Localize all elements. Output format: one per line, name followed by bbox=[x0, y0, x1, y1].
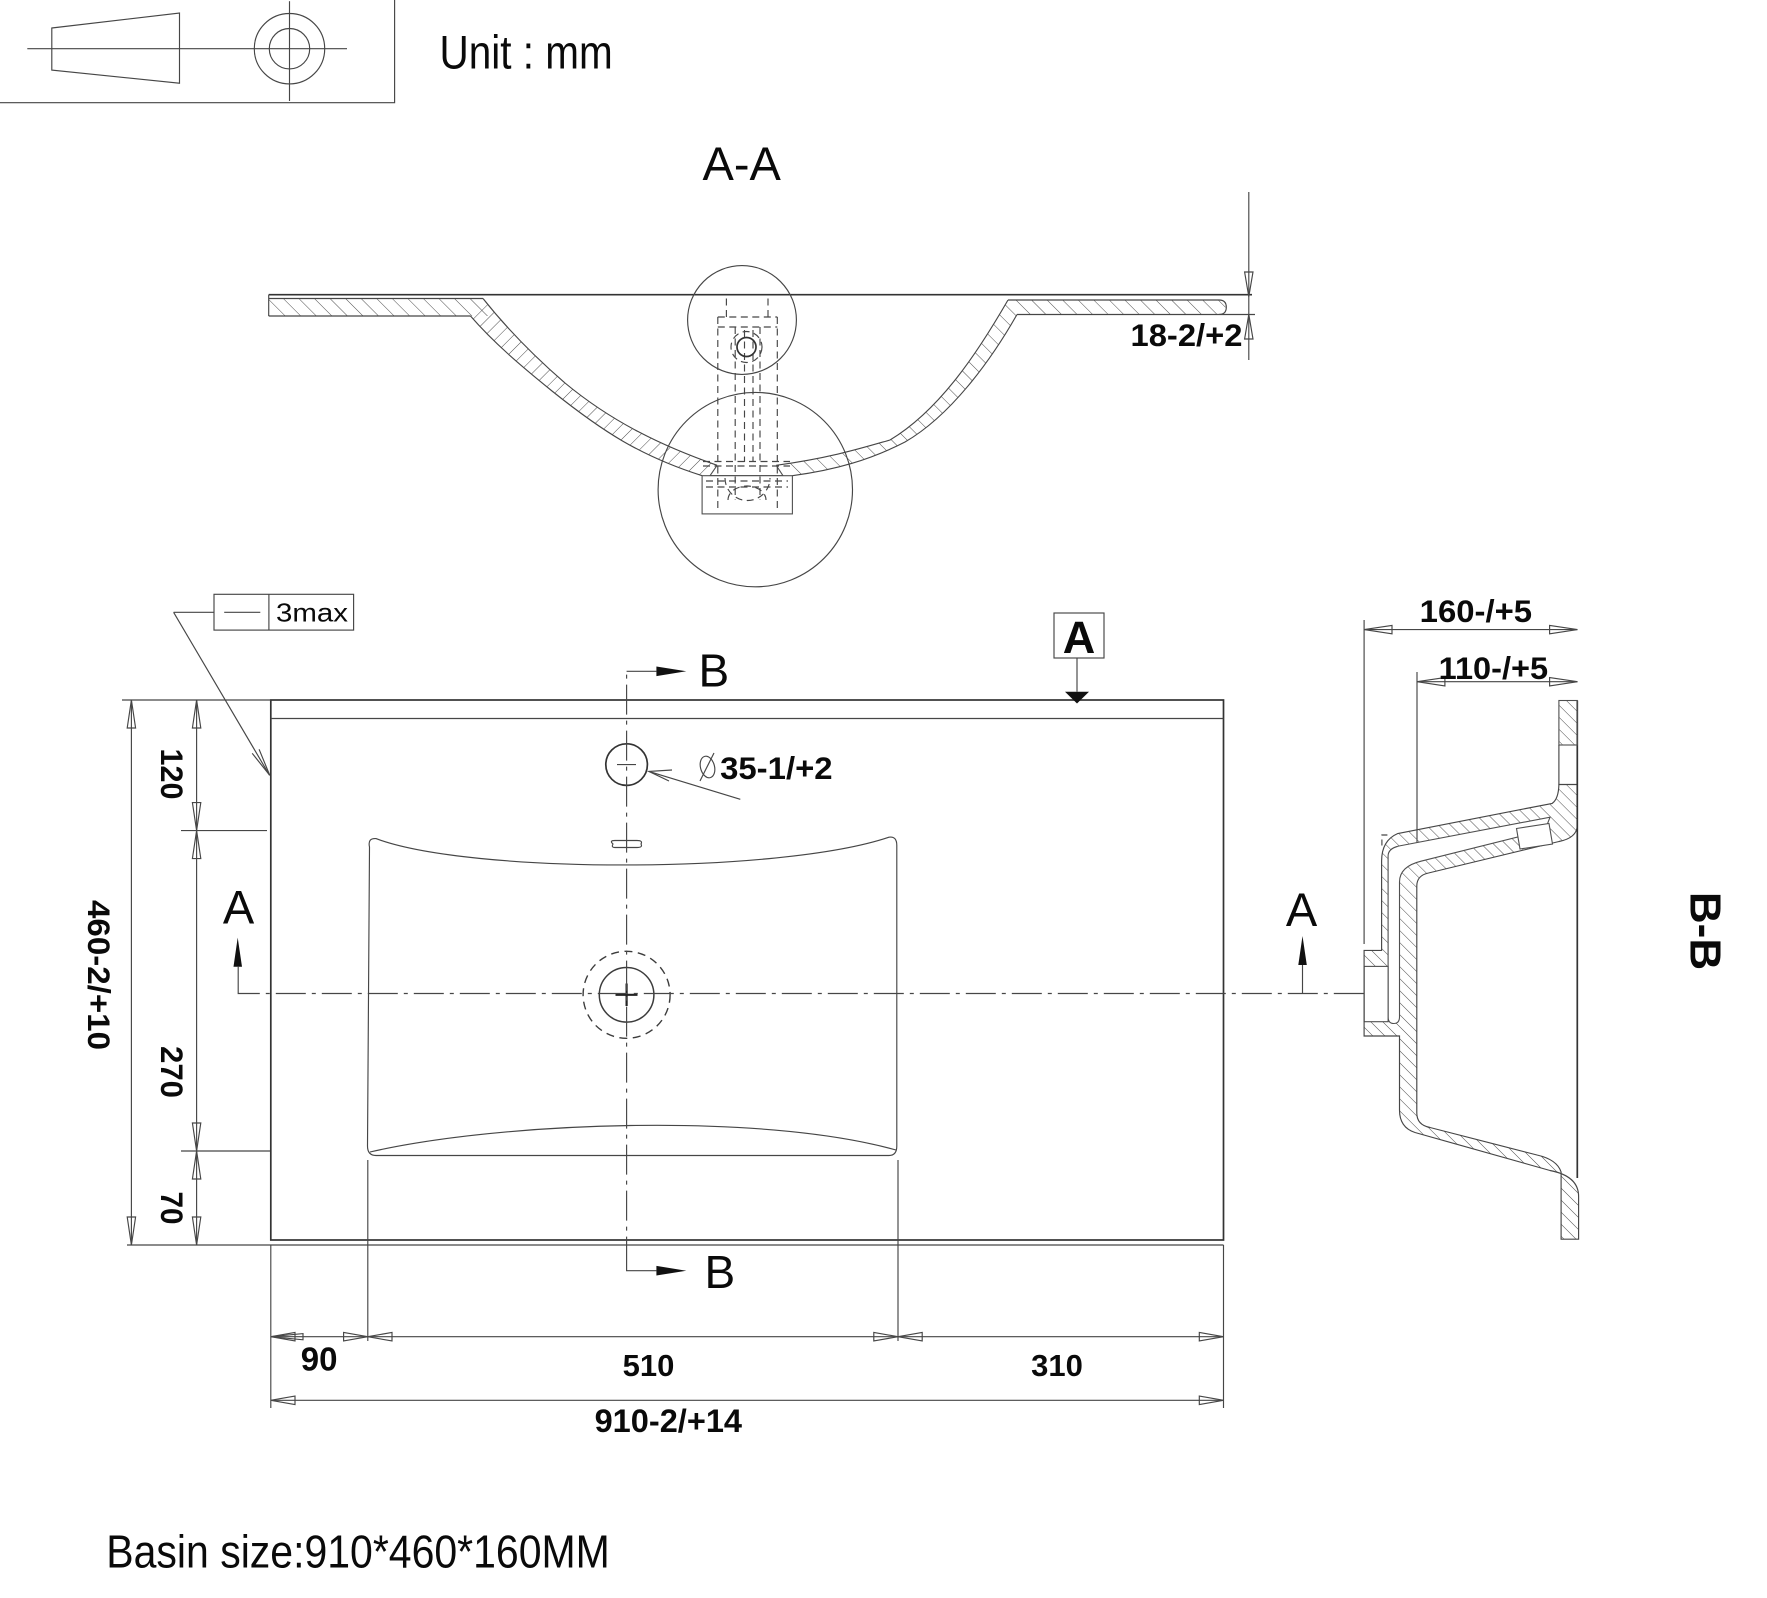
svg-text:A-A: A-A bbox=[703, 137, 782, 190]
svg-text:510: 510 bbox=[623, 1348, 675, 1383]
svg-text:A: A bbox=[1063, 612, 1096, 663]
svg-text:35-1/+2: 35-1/+2 bbox=[720, 750, 833, 786]
svg-text:310: 310 bbox=[1031, 1348, 1083, 1383]
svg-text:18-2/+2: 18-2/+2 bbox=[1131, 317, 1243, 353]
svg-text:B: B bbox=[699, 645, 730, 697]
svg-text:110-/+5: 110-/+5 bbox=[1439, 650, 1548, 686]
svg-text:B: B bbox=[705, 1246, 736, 1298]
svg-text:460-2/+10: 460-2/+10 bbox=[81, 900, 117, 1050]
svg-text:3max: 3max bbox=[276, 598, 348, 628]
svg-text:160-/+5: 160-/+5 bbox=[1420, 593, 1532, 629]
svg-text:90: 90 bbox=[301, 1341, 338, 1378]
svg-text:120: 120 bbox=[154, 749, 190, 800]
svg-text:270: 270 bbox=[154, 1046, 190, 1098]
svg-text:Basin size:910*460*160MM: Basin size:910*460*160MM bbox=[106, 1525, 610, 1577]
svg-text:Unit : mm: Unit : mm bbox=[440, 25, 613, 78]
svg-text:70: 70 bbox=[154, 1192, 190, 1225]
svg-text:A: A bbox=[1286, 883, 1318, 936]
svg-text:A: A bbox=[223, 881, 255, 934]
svg-text:910-2/+14: 910-2/+14 bbox=[595, 1403, 743, 1439]
svg-text:B-B: B-B bbox=[1681, 892, 1730, 970]
